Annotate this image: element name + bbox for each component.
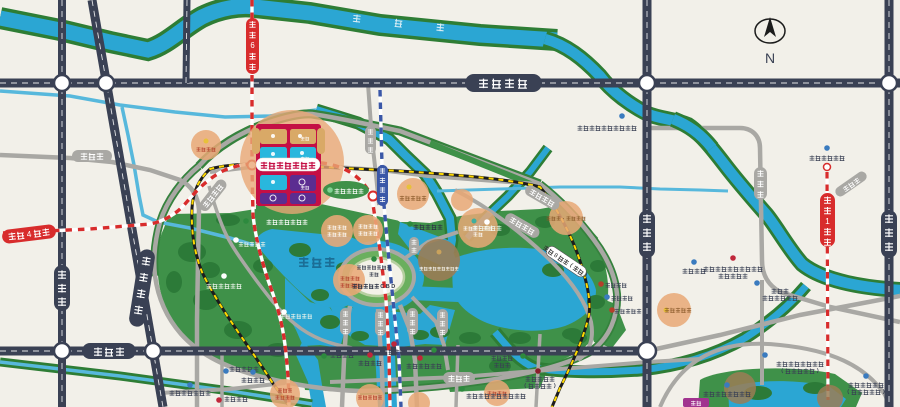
svg-text:D: D: [391, 284, 395, 290]
svg-text:C: C: [380, 284, 384, 290]
svg-text:6: 6: [250, 41, 254, 50]
svg-text:N: N: [765, 50, 775, 66]
svg-text:1: 1: [825, 216, 830, 226]
svg-text:B: B: [386, 284, 390, 290]
